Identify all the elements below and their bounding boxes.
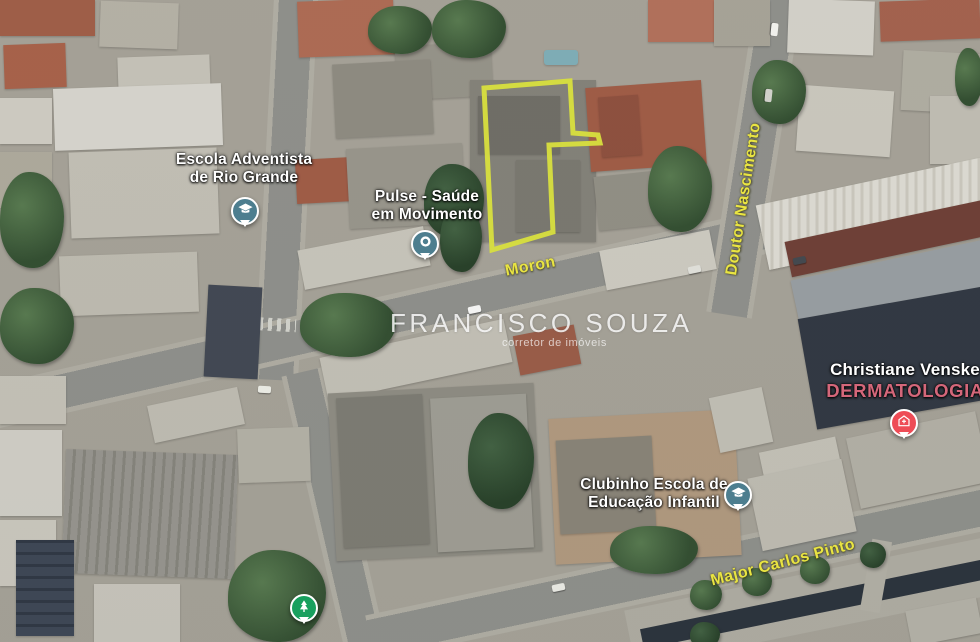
car [770,23,778,37]
car [687,265,701,275]
building [598,95,642,158]
tree [690,622,720,642]
building [796,85,894,157]
tree [432,0,506,58]
tree [648,146,712,232]
building [787,0,875,55]
solar-panels [16,540,74,636]
school-icon [730,484,747,506]
building [714,0,770,46]
building [0,0,95,36]
tree [468,413,534,509]
building [59,252,199,317]
building [599,230,717,291]
poi-label-line: de Rio Grande [129,169,359,187]
hospital-pin[interactable] [890,409,918,437]
school-pin[interactable] [231,197,259,225]
building [709,387,773,453]
generic-poi-pin[interactable] [411,230,439,258]
building [62,449,238,579]
watermark-title: FRANCISCO SOUZA [390,308,692,339]
school-icon [237,200,254,222]
tree [955,48,980,106]
building [0,98,52,144]
building [478,96,560,154]
poi-label-line: Escola Adventista [129,151,359,169]
building [336,394,430,548]
poi-label-line: Pulse - Saúde [327,188,527,206]
building [53,83,223,151]
poi-label-pulse[interactable]: Pulse - Saúde em Movimento [327,188,527,225]
park-pin[interactable] [290,594,318,622]
hospital-icon [896,413,912,434]
building [99,1,179,50]
car [764,89,772,103]
building [0,376,66,424]
tree [0,172,64,268]
building [332,59,434,138]
car [258,386,271,394]
building [237,427,311,483]
tree [368,6,432,54]
poi-label-line: em Movimento [327,206,527,224]
building [204,285,263,380]
swimming-pool [544,50,578,65]
poi-label-line: Christiane Venske [805,360,980,380]
generic-poi-icon [417,233,434,255]
building [3,43,66,89]
building [648,0,720,42]
school-pin[interactable] [724,481,752,509]
park-icon [296,598,312,619]
building [879,0,980,42]
tree [300,293,396,357]
satellite-map[interactable]: FRANCISCO SOUZA corretor de imóveis Esco… [0,0,980,642]
poi-label-dermatologia[interactable]: Christiane Venske DERMATOLOGIA [805,360,980,402]
poi-label-line: DERMATOLOGIA [805,380,980,402]
building [297,226,430,290]
tree [0,288,74,364]
poi-label-escola-adventista[interactable]: Escola Adventista de Rio Grande [129,151,359,188]
building [94,584,180,642]
building [147,387,245,443]
watermark-subtitle: corretor de imóveis [502,337,607,349]
building [0,430,62,516]
building [930,96,980,164]
tree [610,526,698,574]
